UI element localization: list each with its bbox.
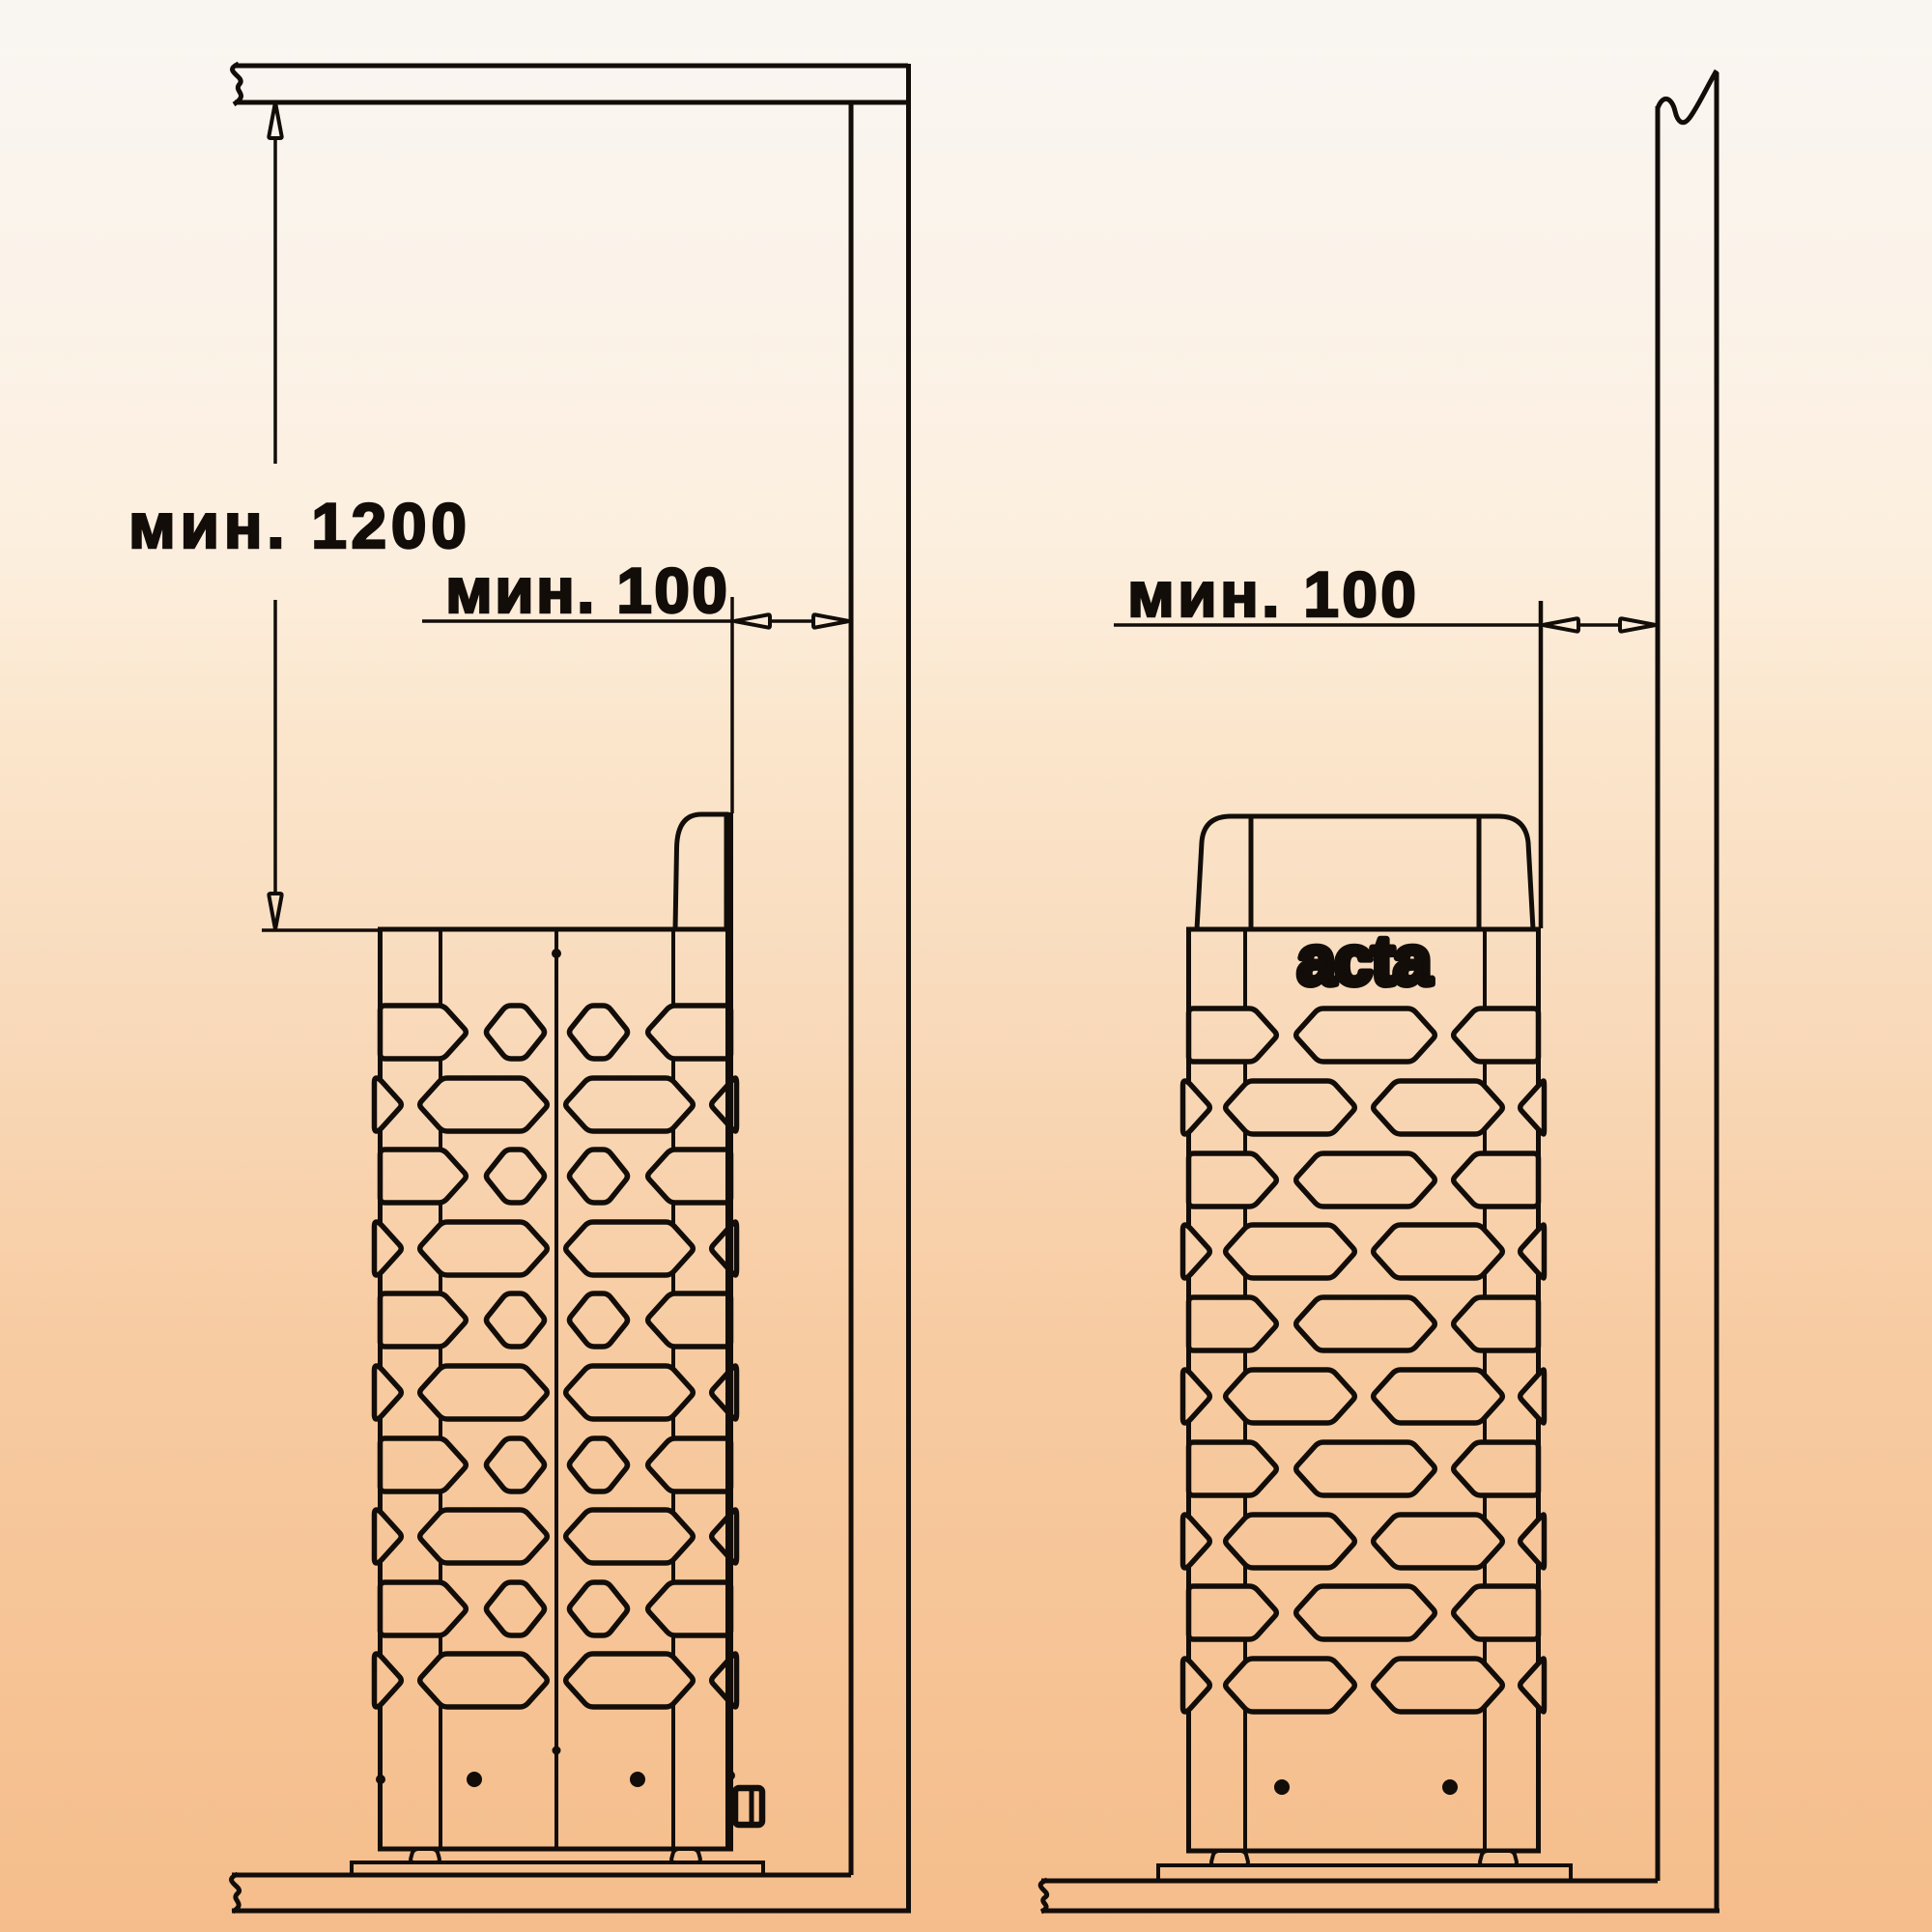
svg-text:acta: acta <box>1297 923 1433 1000</box>
svg-text:мин. 1200: мин. 1200 <box>128 490 467 561</box>
svg-text:мин. 100: мин. 100 <box>1127 558 1416 630</box>
svg-text:мин. 100: мин. 100 <box>445 554 727 626</box>
